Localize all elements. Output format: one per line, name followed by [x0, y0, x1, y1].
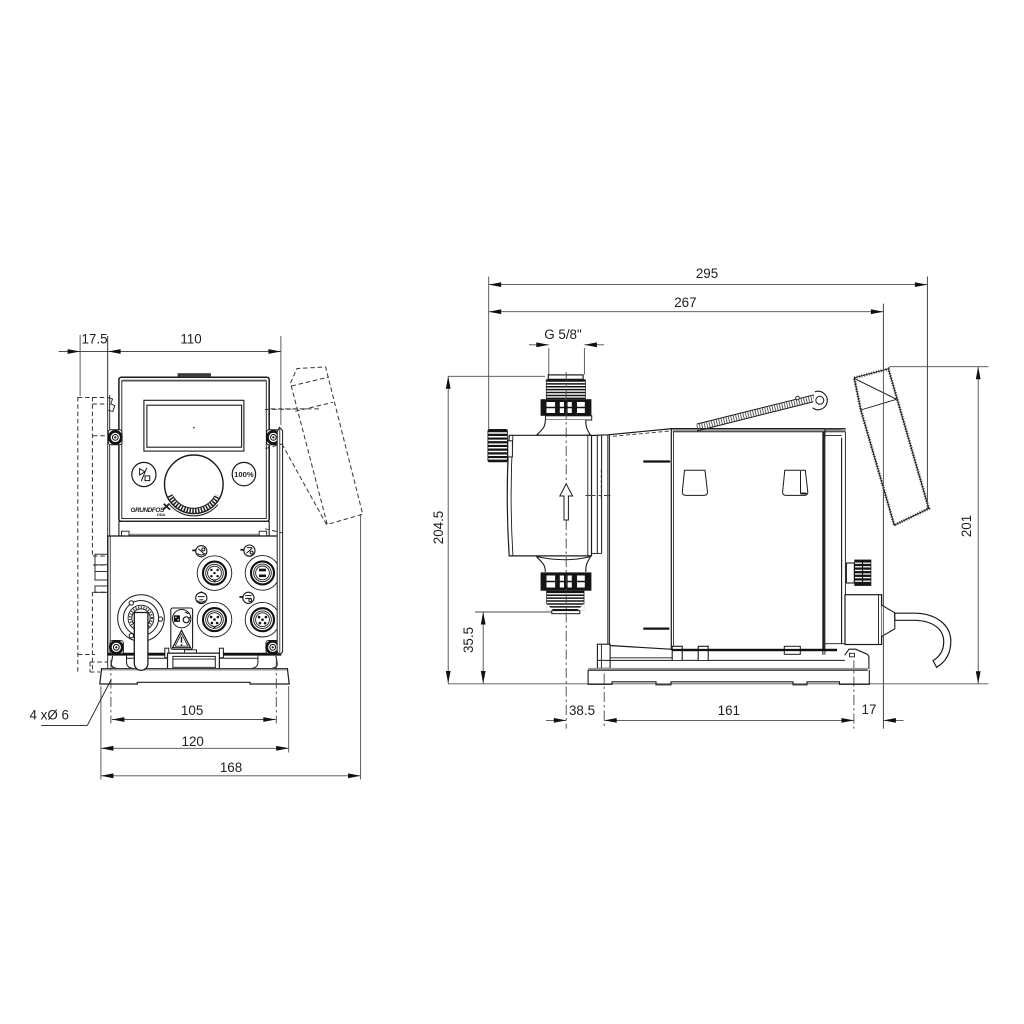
svg-text:105: 105: [181, 703, 203, 718]
svg-text:35.5: 35.5: [461, 627, 476, 653]
svg-text:17: 17: [862, 702, 877, 717]
svg-text:267: 267: [674, 295, 696, 310]
svg-text:204.5: 204.5: [431, 511, 446, 545]
svg-text:DDA: DDA: [157, 512, 165, 517]
svg-text:295: 295: [696, 266, 718, 281]
svg-text:17.5: 17.5: [81, 332, 107, 347]
svg-text:G 5/8": G 5/8": [544, 327, 582, 342]
svg-text:120: 120: [182, 734, 204, 749]
svg-text:110: 110: [180, 332, 201, 347]
svg-text:4 xØ 6: 4 xØ 6: [30, 708, 69, 723]
svg-text:38.5: 38.5: [569, 703, 595, 718]
svg-text:201: 201: [959, 515, 974, 537]
svg-text:100%: 100%: [234, 470, 254, 479]
svg-text:168: 168: [220, 760, 242, 775]
svg-text:161: 161: [718, 703, 740, 718]
